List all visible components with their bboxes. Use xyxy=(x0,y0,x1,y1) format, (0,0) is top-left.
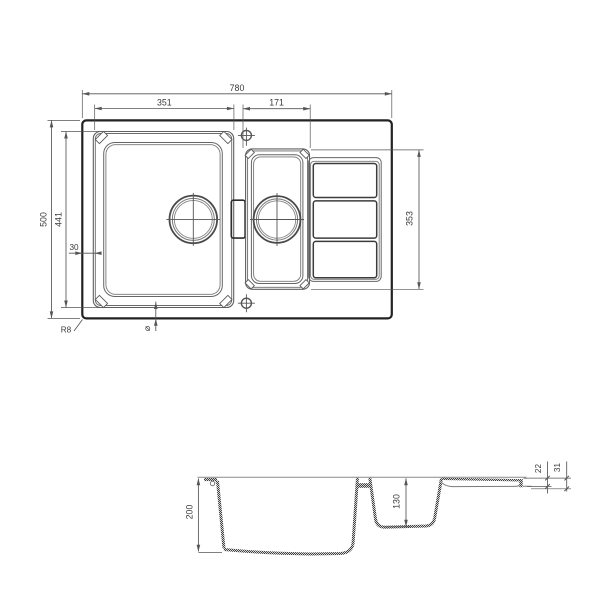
svg-text:353: 353 xyxy=(405,211,415,226)
svg-text:22: 22 xyxy=(534,464,543,474)
svg-text:31: 31 xyxy=(553,463,562,473)
svg-text:130: 130 xyxy=(392,494,402,509)
svg-text:30: 30 xyxy=(69,243,79,252)
svg-text:200: 200 xyxy=(185,505,195,520)
svg-text:351: 351 xyxy=(157,98,172,108)
svg-text:780: 780 xyxy=(230,83,245,93)
svg-text:500: 500 xyxy=(39,212,49,227)
svg-text:171: 171 xyxy=(269,98,284,108)
svg-text:⌀: ⌀ xyxy=(142,325,152,331)
svg-text:R8: R8 xyxy=(61,326,72,335)
svg-text:441: 441 xyxy=(54,212,64,227)
